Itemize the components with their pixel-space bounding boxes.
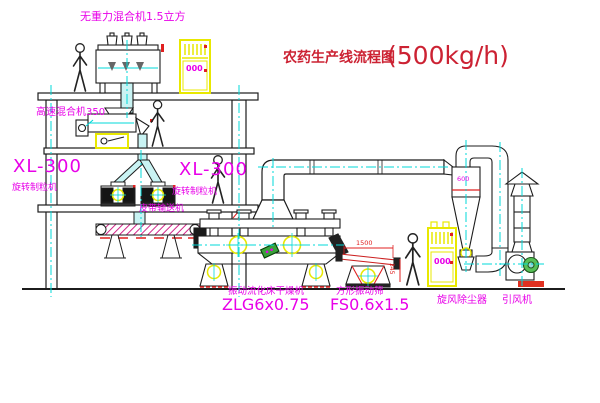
worker-figure-floor2 [151,101,163,146]
fluid-bed-dryer [194,210,340,287]
granulator-left-name-label: 旋转制粒机 [12,184,57,193]
sieve-height-dimension: 345 [388,263,394,274]
building-floor-2 [44,148,254,154]
cabinet-top-display-text: 000 [186,65,203,73]
worker-figure-ground [406,234,420,285]
dryer-model-label: ZLG6x0.75 [222,297,310,313]
worker-figure-top [74,44,87,91]
cyclone-size-annotation: 600 [457,176,469,183]
exhaust-duct [253,160,444,219]
sieve-model-label: FS0.6x1.5 [330,297,409,313]
belt-conveyor-label: 皮带输送机 [139,205,184,214]
cyclone-label: 旋风除尘器 [437,296,487,306]
cabinet-right-display-text: 000 [434,258,451,266]
building-floor-1 [38,93,258,100]
diagram-title: 农药生产线流程图 [283,51,395,65]
granulator-left [101,182,136,206]
induced-draft-fan [506,172,544,287]
diagram-title-capacity: (500kg/h) [387,43,509,68]
granulator-right [141,182,176,206]
downcomer-elbow [476,248,508,272]
granulator-left-model-label: XL-300 [13,158,82,176]
control-cabinet-right [428,222,456,286]
high-speed-mixer-label: 高速混合机350 [36,108,105,118]
granulator-right-model-label: XL-300 [179,161,248,179]
sieve-width-dimension: 1500 [356,240,373,247]
belt-conveyor [96,212,200,258]
cad-flow-diagram: 农药生产线流程图 (500kg/h) 无重力混合机1.5立方 高速混合机350 … [0,0,600,403]
granulator-feed-pipes [112,154,163,184]
granulator-right-name-label: 旋转制粒机 [172,188,217,197]
gravity-mixer [96,33,164,113]
fan-label: 引风机 [502,296,532,306]
gravity-mixer-label: 无重力混合机1.5立方 [80,11,186,22]
